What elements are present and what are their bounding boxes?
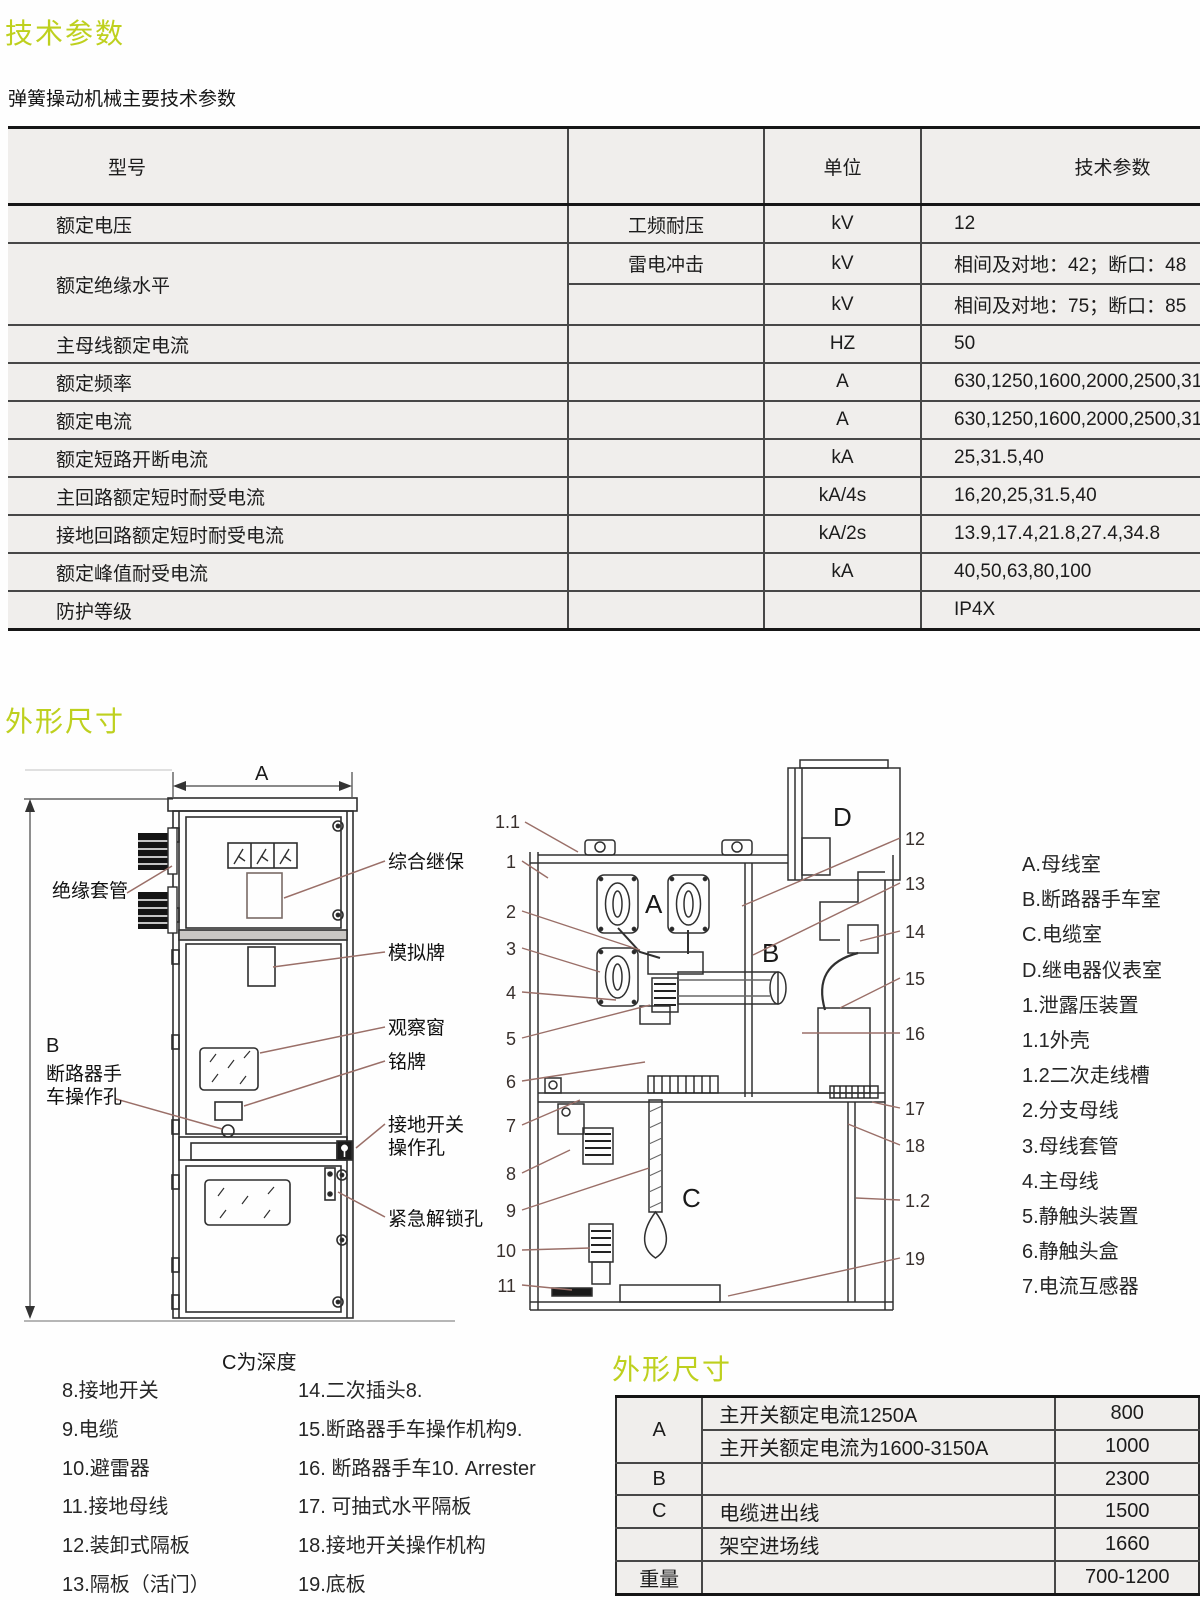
- callout-17: 17: [905, 1099, 925, 1119]
- cell: 630,1250,1600,2000,2500,3150: [921, 401, 1200, 439]
- cell: 额定电压: [8, 205, 568, 244]
- legend-item: 7.电流互感器: [1022, 1270, 1162, 1305]
- cell: IP4X: [921, 591, 1200, 630]
- cell: 防护等级: [8, 591, 568, 630]
- legend-item: 16. 断路器手车10. Arrester: [298, 1450, 536, 1489]
- label-earth-switch-1: 接地开关: [388, 1114, 464, 1136]
- cell: kV: [764, 284, 921, 325]
- legend-item: D.继电器仪表室: [1022, 954, 1162, 989]
- callout-1-2: 1.2: [905, 1191, 930, 1211]
- legend-item: A.母线室: [1022, 848, 1162, 883]
- cell: 雷电冲击: [568, 243, 764, 284]
- legend-item: 9.电缆: [62, 1411, 210, 1450]
- compartment-letter-d: D: [833, 802, 852, 832]
- cell: 额定峰值耐受电流: [8, 553, 568, 591]
- table-row: 额定短路开断电流 kA 25,31.5,40: [8, 439, 1200, 477]
- table-row: 防护等级 IP4X: [8, 591, 1200, 630]
- cell: [764, 591, 921, 630]
- legend-item: 10.避雷器: [62, 1450, 210, 1489]
- table-row: A 主开关额定电流1250A 800: [616, 1397, 1199, 1431]
- legend-item: 4.主母线: [1022, 1165, 1162, 1200]
- table-row: B 2300: [616, 1463, 1199, 1495]
- cabinet-outline: [168, 798, 357, 1318]
- parts-legend-col1: 8.接地开关 9.电缆 10.避雷器 11.接地母线 12.装卸式隔板 13.隔…: [62, 1372, 210, 1600]
- legend-item: 6.静触头盒: [1022, 1235, 1162, 1270]
- cell: [568, 515, 764, 553]
- legend-item: 12.装卸式隔板: [62, 1527, 210, 1566]
- cell: B: [616, 1463, 702, 1495]
- cell: 额定电流: [8, 401, 568, 439]
- legend-item: 1.1外壳: [1022, 1024, 1162, 1059]
- callout-19: 19: [905, 1249, 925, 1269]
- cell: [568, 591, 764, 630]
- cell: 主开关额定电流1250A: [702, 1397, 1055, 1431]
- cell: 主母线额定电流: [8, 325, 568, 363]
- cell: [568, 553, 764, 591]
- callout-15: 15: [905, 969, 925, 989]
- callout-10: 10: [496, 1241, 516, 1261]
- cell: [702, 1561, 1055, 1595]
- table-header-row: 型号 单位 技术参数: [8, 128, 1200, 205]
- callout-9: 9: [506, 1201, 516, 1221]
- legend-item: 14.二次插头8.: [298, 1372, 536, 1411]
- cell: 主开关额定电流为1600-3150A: [702, 1430, 1055, 1463]
- section-title-dimensions-table: 外形尺寸: [612, 1348, 732, 1388]
- table-row: 额定峰值耐受电流 kA 40,50,63,80,100: [8, 553, 1200, 591]
- cell: 40,50,63,80,100: [921, 553, 1200, 591]
- label-breaker-hole-1: 断路器手: [46, 1063, 122, 1085]
- cell: A: [616, 1397, 702, 1464]
- cell: [568, 363, 764, 401]
- table-row: 额定绝缘水平 雷电冲击 kV 相间及对地：42；断口：48: [8, 243, 1200, 284]
- cell: 额定短路开断电流: [8, 439, 568, 477]
- dim-b-label: B: [46, 1035, 59, 1057]
- callout-6: 6: [506, 1072, 516, 1092]
- cell: 额定频率: [8, 363, 568, 401]
- cell: 25,31.5,40: [921, 439, 1200, 477]
- cell: 重量: [616, 1561, 702, 1595]
- callout-3: 3: [506, 939, 516, 959]
- cell: 50: [921, 325, 1200, 363]
- legend-item: 13.隔板（活门）: [62, 1566, 210, 1600]
- cell: 工频耐压: [568, 205, 764, 244]
- callout-5: 5: [506, 1029, 516, 1049]
- table-row: 主开关额定电流为1600-3150A 1000: [616, 1430, 1199, 1463]
- cell: [568, 477, 764, 515]
- screw-icons: [333, 821, 347, 1307]
- cell: [568, 439, 764, 477]
- label-emergency: 紧急解锁孔: [388, 1208, 483, 1230]
- cell: 800: [1055, 1397, 1199, 1431]
- callout-18: 18: [905, 1136, 925, 1156]
- header-unit: 单位: [764, 128, 921, 205]
- legend-item: C.电缆室: [1022, 918, 1162, 953]
- callout-12: 12: [905, 829, 925, 849]
- cell: 相间及对地：75；断口：85: [921, 284, 1200, 325]
- depth-note: C为深度: [222, 1346, 296, 1375]
- compartment-legend: A.母线室 B.断路器手车室 C.电缆室 D.继电器仪表室 1.泄露压装置 1.…: [1022, 848, 1162, 1306]
- table-row: 额定频率 A 630,1250,1600,2000,2500,3150: [8, 363, 1200, 401]
- cell: 额定绝缘水平: [8, 243, 568, 325]
- callout-16: 16: [905, 1024, 925, 1044]
- dimensions-table: A 主开关额定电流1250A 800 主开关额定电流为1600-3150A 10…: [615, 1395, 1200, 1596]
- cell: 1660: [1055, 1528, 1199, 1561]
- compartment-letter-c: C: [682, 1183, 701, 1213]
- callout-13: 13: [905, 874, 925, 894]
- parts-legend-col2: 14.二次插头8. 15.断路器手车操作机构9. 16. 断路器手车10. Ar…: [298, 1372, 536, 1600]
- compartment-letter-a: A: [645, 889, 663, 919]
- cell: [568, 401, 764, 439]
- legend-item: 8.接地开关: [62, 1372, 210, 1411]
- section-title-dimensions: 外形尺寸: [5, 700, 125, 740]
- cell: kA: [764, 439, 921, 477]
- callout-2: 2: [506, 902, 516, 922]
- front-view-drawing: A B: [0, 740, 510, 1390]
- label-earth-switch-2: 操作孔: [388, 1137, 445, 1159]
- bushing-shape: [138, 828, 177, 933]
- legend-item: 15.断路器手车操作机构9.: [298, 1411, 536, 1450]
- table-row: 额定电流 A 630,1250,1600,2000,2500,3150: [8, 401, 1200, 439]
- cell: 700-1200: [1055, 1561, 1199, 1595]
- cell: [568, 325, 764, 363]
- cell: 1500: [1055, 1495, 1199, 1528]
- cell: kA: [764, 553, 921, 591]
- section-view-drawing: A B C D: [485, 738, 975, 1348]
- header-model: 型号: [8, 128, 568, 205]
- cell: 12: [921, 205, 1200, 244]
- cell: A: [764, 363, 921, 401]
- legend-item: 5.静触头装置: [1022, 1200, 1162, 1235]
- label-window: 观察窗: [388, 1017, 445, 1039]
- dim-a-label: A: [255, 763, 269, 785]
- header-sub: [568, 128, 764, 205]
- cell: kV: [764, 243, 921, 284]
- cell: 相间及对地：42；断口：48: [921, 243, 1200, 284]
- cell: HZ: [764, 325, 921, 363]
- table-row: 架空进场线 1660: [616, 1528, 1199, 1561]
- cell: 2300: [1055, 1463, 1199, 1495]
- cell: 630,1250,1600,2000,2500,3150: [921, 363, 1200, 401]
- legend-item: 3.母线套管: [1022, 1130, 1162, 1165]
- callout-8: 8: [506, 1164, 516, 1184]
- header-params: 技术参数: [921, 128, 1200, 205]
- cell: 1000: [1055, 1430, 1199, 1463]
- section-title-tech-params: 技术参数: [5, 12, 125, 52]
- table-row: 主回路额定短时耐受电流 kA/4s 16,20,25,31.5,40: [8, 477, 1200, 515]
- cell: 16,20,25,31.5,40: [921, 477, 1200, 515]
- label-breaker-hole-2: 车操作孔: [46, 1086, 122, 1108]
- cell: kA/2s: [764, 515, 921, 553]
- cell: A: [764, 401, 921, 439]
- table-row: 重量 700-1200: [616, 1561, 1199, 1595]
- cell: 13.9,17.4,21.8,27.4,34.8: [921, 515, 1200, 553]
- label-nameplate: 铭牌: [388, 1051, 426, 1073]
- cell: 电缆进出线: [702, 1495, 1055, 1528]
- legend-item: 18.接地开关操作机构: [298, 1527, 536, 1566]
- legend-item: 2.分支母线: [1022, 1094, 1162, 1129]
- callout-1-1: 1.1: [495, 812, 520, 832]
- cell: kV: [764, 205, 921, 244]
- cell: 接地回路额定短时耐受电流: [8, 515, 568, 553]
- legend-item: 17. 可抽式水平隔板: [298, 1488, 536, 1527]
- cell: [702, 1463, 1055, 1495]
- cell: [616, 1528, 702, 1561]
- cell: kA/4s: [764, 477, 921, 515]
- legend-item: 1.2二次走线槽: [1022, 1059, 1162, 1094]
- cell: C: [616, 1495, 702, 1528]
- callout-11: 11: [497, 1276, 516, 1296]
- table-row: 接地回路额定短时耐受电流 kA/2s 13.9,17.4,21.8,27.4,3…: [8, 515, 1200, 553]
- table-row: 额定电压 工频耐压 kV 12: [8, 205, 1200, 244]
- label-bushing: 绝缘套管: [52, 880, 128, 902]
- callout-7: 7: [506, 1116, 516, 1136]
- main-params-table: 型号 单位 技术参数 额定电压 工频耐压 kV 12 额定绝缘水平 雷电冲击 k…: [8, 126, 1200, 631]
- cell: 主回路额定短时耐受电流: [8, 477, 568, 515]
- catalog-page: 技术参数 弹簧操动机械主要技术参数 型号 单位 技术参数 额定电压 工频耐压 k…: [0, 0, 1200, 1600]
- legend-item: 11.接地母线: [62, 1488, 210, 1527]
- callout-1: 1: [506, 852, 516, 872]
- cell: 架空进场线: [702, 1528, 1055, 1561]
- legend-item: 1.泄露压装置: [1022, 989, 1162, 1024]
- cell: [568, 284, 764, 325]
- callout-4: 4: [506, 983, 516, 1003]
- callout-14: 14: [905, 922, 925, 942]
- table-row: 主母线额定电流 HZ 50: [8, 325, 1200, 363]
- table-row: C 电缆进出线 1500: [616, 1495, 1199, 1528]
- label-mimic: 模拟牌: [388, 942, 445, 964]
- label-relay: 综合继保: [388, 851, 464, 873]
- compartment-letter-b: B: [762, 938, 779, 968]
- legend-item: 19.底板: [298, 1566, 536, 1600]
- legend-item: B.断路器手车室: [1022, 883, 1162, 918]
- table-subtitle: 弹簧操动机械主要技术参数: [8, 84, 236, 111]
